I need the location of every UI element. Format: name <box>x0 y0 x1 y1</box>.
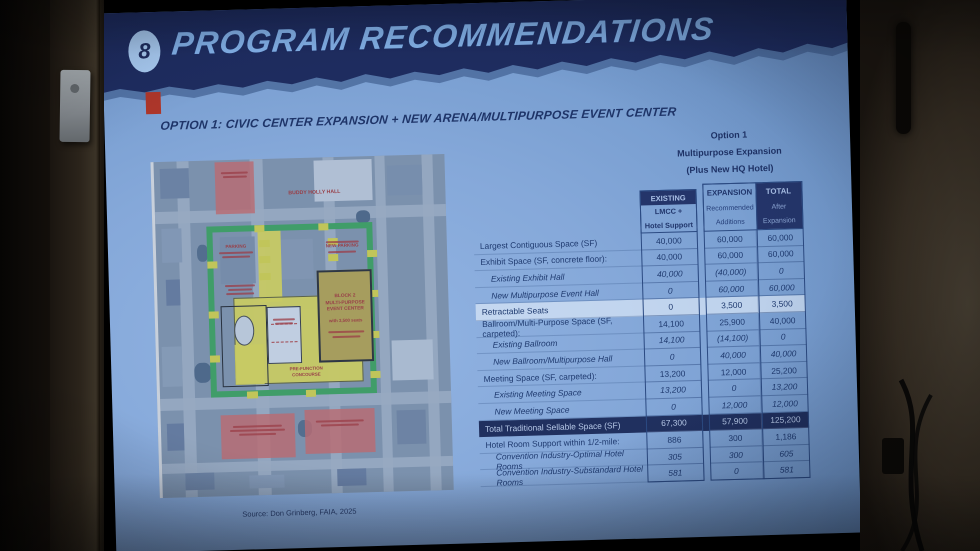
cell-total: 1,186 <box>762 428 809 446</box>
map-label-scribble <box>328 330 364 333</box>
light-switch <box>59 70 90 142</box>
wall-right <box>856 0 980 551</box>
cell-expansion: 0 <box>710 463 763 481</box>
cell-existing: 0 <box>645 398 702 416</box>
map-label-block2-seats: with 3,500 seats <box>329 318 363 324</box>
total-header-sub: After <box>756 199 802 214</box>
map-label-prefunction-group: PRE-FUNCTION CONCOURSE <box>279 365 335 378</box>
slide-title: PROGRAM RECOMMENDATIONS <box>170 10 716 62</box>
expansion-header-title: EXPANSION <box>703 183 755 201</box>
cell-existing: 14,100 <box>643 331 700 349</box>
building-block <box>161 229 182 263</box>
map-label-scribble <box>225 284 255 287</box>
cell-expansion: 60,000 <box>704 230 757 248</box>
map-label-scribble <box>321 423 359 426</box>
map-label-scribble <box>228 288 252 291</box>
map-label-new-parking-group: NEW PARKING <box>319 239 366 254</box>
map-label-parking: PARKING <box>214 243 258 250</box>
map-label-parking-group: PARKING <box>214 243 258 258</box>
cell-total: 3,500 <box>758 295 805 313</box>
slide-subtitle: OPTION 1: CIVIC CENTER EXPANSION + NEW A… <box>160 104 677 132</box>
cell-expansion: 60,000 <box>704 247 757 265</box>
cell-total: 0 <box>759 329 806 347</box>
map-label-scribble <box>219 251 254 254</box>
event-center-block: BLOCK 2 MULTI-PURPOSE EVENT CENTER with … <box>317 269 375 363</box>
dashed-annotation <box>271 341 297 343</box>
existing-header-title: EXISTING <box>640 190 695 206</box>
cell-expansion: (14,100) <box>706 330 759 348</box>
cell-total: 40,000 <box>759 312 806 330</box>
map-label-scribble <box>273 318 295 321</box>
parcel-highlight <box>220 414 295 460</box>
building-block <box>167 423 185 450</box>
cell-expansion: 300 <box>709 429 762 447</box>
presentation-slide: 8 PROGRAM RECOMMENDATIONS OPTION 1: CIVI… <box>104 0 860 551</box>
cell-expansion: 12,000 <box>708 396 761 414</box>
cell-expansion: 3,500 <box>705 297 758 315</box>
existing-column-header: EXISTING LMCC + Hotel Support <box>639 189 697 234</box>
cell-total: 60,000 <box>757 229 804 247</box>
wall-left <box>0 0 112 551</box>
building-block <box>391 339 433 380</box>
cell-total: 40,000 <box>760 345 807 363</box>
cell-total: 605 <box>763 445 810 463</box>
yellow-dash <box>367 250 378 257</box>
yellow-dash <box>207 261 218 268</box>
cable <box>856 0 980 551</box>
cell-existing: 14,100 <box>643 315 700 333</box>
map-label-scribble <box>223 176 247 179</box>
map-label-scribble <box>332 335 360 338</box>
yellow-dash <box>259 256 270 263</box>
cell-expansion: 12,000 <box>707 363 760 381</box>
cell-total: 12,000 <box>761 395 808 413</box>
cell-existing: 13,200 <box>644 365 701 383</box>
building-block <box>386 165 422 196</box>
option-note-line: (Plus New HQ Hotel) <box>644 159 816 181</box>
cell-existing: 305 <box>647 448 704 466</box>
yellow-dash <box>259 240 270 247</box>
building-block <box>396 410 426 444</box>
expansion-total-header-group: EXPANSION Recommended Additions TOTAL Af… <box>702 181 803 232</box>
map-label-center-group <box>270 316 298 325</box>
yellow-dash <box>254 225 265 232</box>
cell-existing: 581 <box>647 464 704 482</box>
source-credit: Source: Don Grinberg, FAIA, 2025 <box>242 507 356 519</box>
cell-existing: 40,000 <box>642 265 699 283</box>
existing-header-sub: Hotel Support <box>641 218 696 233</box>
map-label-meeting-group <box>222 282 257 295</box>
yellow-dash <box>260 273 271 280</box>
cell-existing: 0 <box>644 348 701 366</box>
yellow-dash <box>370 371 381 378</box>
program-table: Largest Contiguous Space (SF) 40,000 60,… <box>474 229 811 487</box>
expansion-header-sub: Additions <box>704 214 756 229</box>
yellow-dash <box>210 355 221 362</box>
cell-expansion: (40,000) <box>705 263 758 281</box>
building-block <box>162 346 183 387</box>
cell-total: 581 <box>763 461 810 479</box>
total-header-sub: Expansion <box>756 213 802 228</box>
parcel-highlight <box>304 408 375 454</box>
building-block <box>159 168 189 199</box>
total-header-title: TOTAL <box>755 182 802 200</box>
tv-screen: 8 PROGRAM RECOMMENDATIONS OPTION 1: CIVI… <box>104 0 860 551</box>
cell-total: 125,200 <box>762 411 809 429</box>
map-label-new-parking: NEW PARKING <box>319 243 366 250</box>
cell-expansion: 40,000 <box>707 346 760 364</box>
cell-total: 60,000 <box>757 246 804 264</box>
slide-number-badge: 8 <box>128 30 161 73</box>
yellow-dash <box>318 223 329 230</box>
yellow-dash <box>209 312 220 319</box>
map-label-scribble <box>221 172 249 175</box>
ballroom-footprint <box>267 306 302 364</box>
cell-total: 0 <box>758 262 805 280</box>
option-note: Option 1 Multipurpose Expansion (Plus Ne… <box>643 125 816 181</box>
cell-existing: 886 <box>646 431 703 449</box>
map-label-scribble <box>230 429 285 433</box>
cell-existing: 13,200 <box>645 381 702 399</box>
row-label: Convention Industry-Substandard Hotel Ro… <box>480 466 647 487</box>
total-column-header: TOTAL After Expansion <box>755 182 802 229</box>
site-map: BLOCK 2 MULTI-PURPOSE EVENT CENTER with … <box>150 154 453 498</box>
cell-existing: 40,000 <box>641 249 698 267</box>
expansion-header-sub: Recommended <box>704 200 756 215</box>
cell-total: 13,200 <box>761 378 808 396</box>
building-block <box>250 474 285 488</box>
room-photo: 8 PROGRAM RECOMMENDATIONS OPTION 1: CIVI… <box>0 0 980 551</box>
map-label-scribble <box>239 433 276 436</box>
map-label-block2: EVENT CENTER <box>327 307 364 314</box>
building-block <box>337 469 367 487</box>
building-block <box>165 279 180 306</box>
cell-expansion: 25,900 <box>706 313 759 331</box>
cell-existing: 67,300 <box>646 414 703 432</box>
map-street <box>155 204 446 224</box>
building-block <box>185 473 215 491</box>
red-accent-square <box>146 92 162 114</box>
cell-existing: 0 <box>643 298 700 316</box>
parcel-highlight <box>215 161 256 214</box>
cell-expansion: 300 <box>710 446 763 464</box>
cell-expansion: 57,900 <box>709 413 762 431</box>
yellow-dash <box>328 254 339 261</box>
yellow-dash <box>247 391 258 398</box>
map-street <box>162 456 453 474</box>
cell-expansion: 0 <box>708 380 761 398</box>
cell-existing: 40,000 <box>641 232 698 250</box>
map-label-scribble <box>233 425 282 428</box>
cell-total: 25,200 <box>760 362 807 380</box>
map-label-block2: BLOCK 2 <box>334 293 355 300</box>
map-label-scribble <box>316 419 364 422</box>
yellow-dash <box>305 389 316 396</box>
cell-existing: 0 <box>642 282 699 300</box>
expansion-column-header: EXPANSION Recommended Additions <box>703 183 756 230</box>
cell-total: 60,000 <box>758 279 805 297</box>
cell-expansion: 60,000 <box>705 280 758 298</box>
